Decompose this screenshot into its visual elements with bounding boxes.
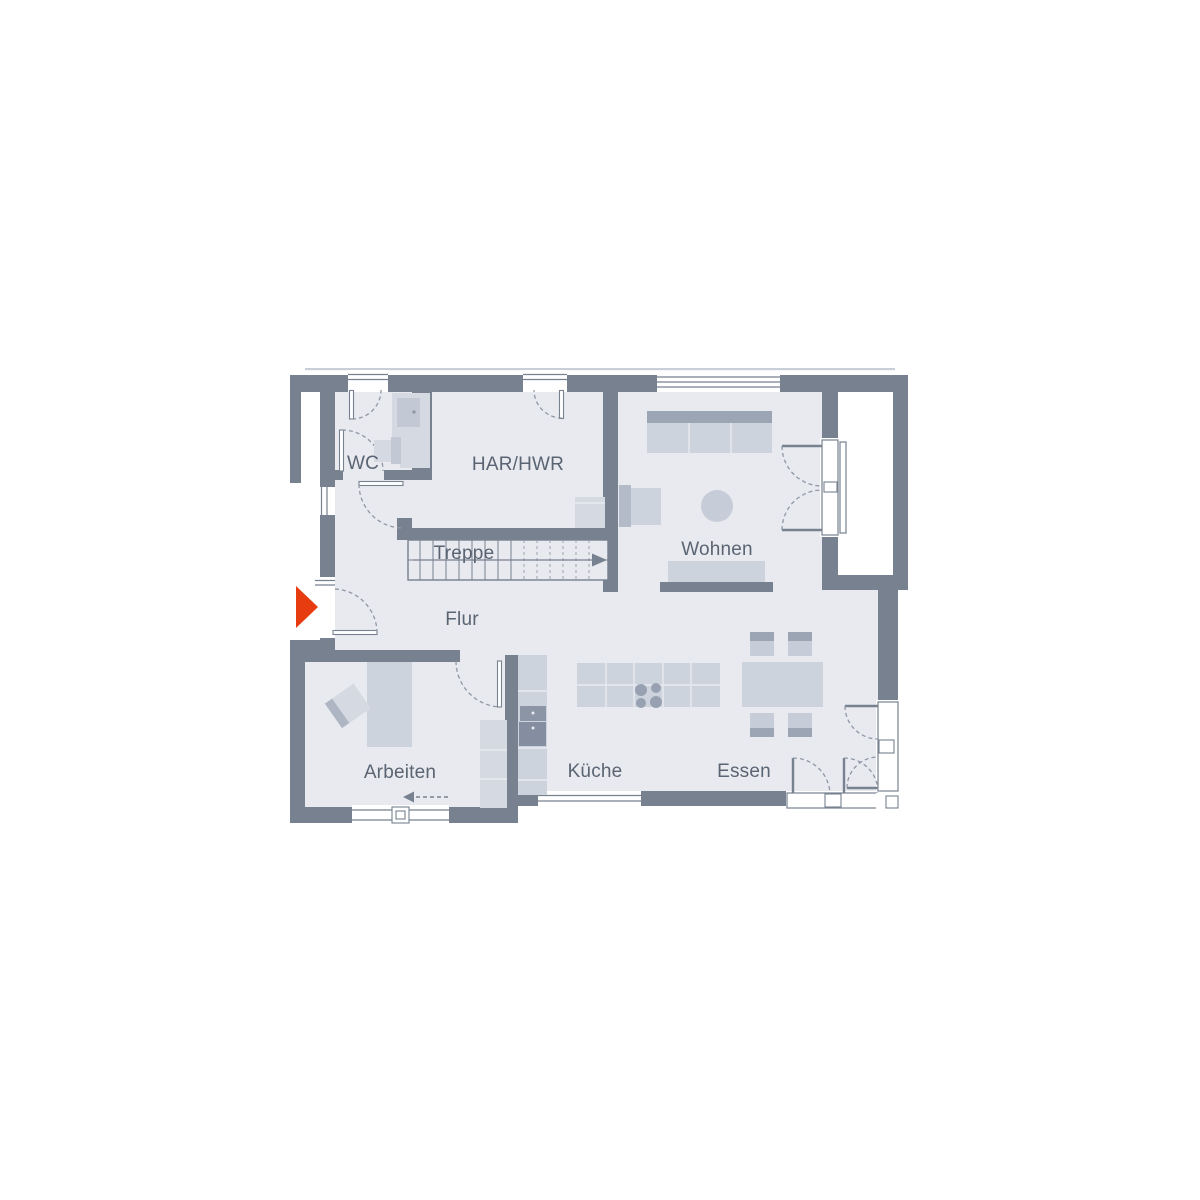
wall-wohnen-right-lower: [822, 533, 838, 577]
chair-back: [750, 728, 774, 737]
chair-back: [750, 632, 774, 641]
chair-back: [788, 632, 812, 641]
cooktop-burner: [635, 684, 647, 696]
coffee-table: [701, 490, 733, 522]
entrance-opening: [315, 577, 335, 638]
arbeiten-window-slider-inner: [396, 811, 405, 819]
kitchen-oven: [519, 722, 546, 746]
wall-arbeiten-top: [290, 650, 460, 662]
room-label-har-hwr: HAR/HWR: [472, 454, 564, 475]
room-label-treppe: Treppe: [434, 543, 495, 564]
essen-door-south-handle: [825, 794, 841, 807]
sideboard: [668, 561, 765, 582]
wc-door-leaf: [340, 430, 344, 471]
wall-left-mid: [320, 515, 335, 579]
sofa-back: [647, 411, 772, 423]
wc-washbasin-tap-icon: [412, 410, 415, 413]
room-label-kueche: Küche: [568, 761, 623, 782]
wall-arbeiten-left: [290, 640, 305, 823]
har-door-leaf: [560, 391, 564, 419]
wall-stairs-top: [397, 528, 608, 540]
floor-plan-svg: WC HAR/HWR Treppe Wohnen Flur Arbeiten K…: [0, 0, 1200, 1200]
essen-door-east-handle: [879, 740, 894, 753]
room-label-arbeiten: Arbeiten: [364, 762, 436, 783]
chair-back: [788, 728, 812, 737]
wall-stairs-stub: [397, 518, 412, 532]
wall-notch: [822, 575, 908, 590]
room-label-essen: Essen: [717, 761, 771, 782]
kueche-window: [538, 791, 641, 806]
cooktop-burner: [636, 698, 646, 708]
cooktop-burner: [651, 683, 661, 693]
dining-chair: [788, 632, 812, 656]
wall-top-left-stub: [290, 392, 301, 483]
room-label-flur: Flur: [445, 609, 479, 630]
chair-seat: [788, 713, 812, 728]
dining-chair: [750, 632, 774, 656]
room-label-wc: WC: [347, 453, 379, 474]
arbeiten-cabinet: [480, 720, 507, 808]
floor-plan-canvas: WC HAR/HWR Treppe Wohnen Flur Arbeiten K…: [0, 0, 1200, 1200]
dining-chair: [750, 713, 774, 737]
sofa-seat: [647, 423, 772, 453]
wall-wc-bottom-right: [384, 470, 412, 480]
wall-right-upper: [893, 392, 908, 577]
furniture-har: [575, 497, 605, 528]
chair-seat: [788, 641, 812, 656]
room-label-wohnen: Wohnen: [681, 539, 753, 560]
roof-eave-line: [305, 368, 895, 370]
kitchen-oven-knob-icon: [532, 727, 535, 730]
wall-wohnen-bottom-partial: [660, 582, 773, 592]
wohnen-terrace-door-handle: [824, 482, 837, 492]
dining-table: [742, 662, 823, 707]
wall-wohnen-right-upper: [822, 392, 838, 442]
desk: [367, 662, 412, 747]
armchair-seat: [631, 488, 661, 525]
essen-corner-post-inner: [886, 796, 898, 808]
wc-toilet-tank: [391, 437, 401, 464]
cooktop-burner: [650, 696, 662, 708]
flur-window-west: [315, 487, 335, 515]
arbeiten-door-leaf: [498, 661, 502, 707]
wc-niche: [400, 437, 430, 468]
wall-left-upper: [320, 392, 335, 489]
entrance-arrow-icon: [296, 586, 318, 628]
wc-window-leaf: [350, 391, 354, 420]
har-door-opening: [523, 370, 567, 392]
har-flur-door-leaf: [359, 482, 403, 486]
chair-seat: [750, 641, 774, 656]
armchair-back: [619, 485, 631, 527]
entrance-door-leaf: [333, 631, 377, 635]
kitchen-microwave-knob-icon: [532, 712, 535, 715]
wc-window: [348, 370, 388, 392]
dining-chair: [788, 713, 812, 737]
chair-seat: [750, 713, 774, 728]
wall-essen-right: [878, 588, 898, 702]
wc-washbasin: [397, 398, 420, 427]
har-washing-machine: [575, 497, 605, 528]
